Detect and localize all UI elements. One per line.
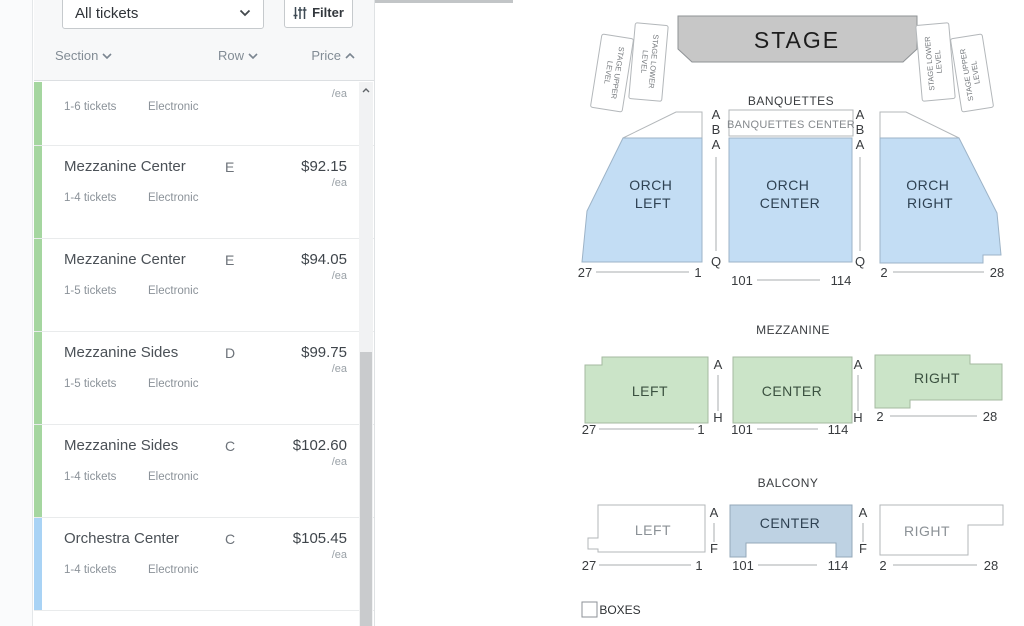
- svg-text:101: 101: [731, 422, 753, 437]
- balcony-left-label: LEFT: [635, 522, 671, 538]
- map-section-banquettes-left[interactable]: [623, 112, 702, 138]
- mezzanine-center-seat-range: 101 114: [731, 422, 848, 437]
- chevron-down-icon: [239, 9, 251, 17]
- ticket-list-header: All tickets Filter Section: [34, 0, 374, 81]
- svg-text:114: 114: [828, 422, 849, 437]
- ticket-section: Mezzanine Center: [64, 251, 186, 268]
- svg-text:2: 2: [879, 558, 886, 573]
- ticket-row-letter: D: [225, 345, 235, 361]
- left-gutter: [0, 0, 33, 626]
- svg-text:1: 1: [694, 265, 701, 280]
- balcony-title: BALCONY: [758, 476, 819, 490]
- ticket-type-value: All tickets: [75, 5, 239, 22]
- mezzanine-left-seat-range: 27 1: [582, 422, 705, 437]
- ticket-delivery: Electronic: [148, 471, 199, 483]
- svg-text:101: 101: [732, 558, 754, 573]
- balcony-right-aisle-rows: A F: [859, 505, 868, 556]
- svg-text:A: A: [712, 137, 721, 152]
- seat-map: STAGE STAGE UPPER LEVEL STAGE LOWER LEVE…: [570, 0, 1024, 626]
- banquettes-title: BANQUETTES: [748, 94, 834, 108]
- svg-text:28: 28: [990, 265, 1004, 280]
- ticket-delivery: Electronic: [148, 564, 199, 576]
- ticket-accent-bar: [34, 332, 42, 424]
- ticket-purchase-page: All tickets Filter Section: [0, 0, 1024, 626]
- orch-left-aisle-rows: A B A Q: [711, 107, 721, 269]
- mezzanine-right-label: RIGHT: [914, 370, 960, 386]
- ticket-row-letter: E: [225, 252, 234, 268]
- svg-text:Q: Q: [855, 254, 865, 269]
- ticket-type-dropdown[interactable]: All tickets: [62, 0, 264, 29]
- stage-label: STAGE: [754, 27, 840, 53]
- ticket-price: $102.60: [293, 437, 347, 454]
- section-column-label: Section: [55, 48, 98, 63]
- svg-text:B: B: [856, 122, 865, 137]
- ticket-delivery: Electronic: [148, 285, 199, 297]
- stage-upper-level-right[interactable]: STAGE UPPER LEVEL: [950, 34, 993, 112]
- mezzanine-left-aisle-rows: A H: [713, 357, 722, 425]
- ticket-section: Mezzanine Center: [64, 158, 186, 175]
- ticket-row[interactable]: Mezzanine Center E $92.15 /ea 1-4 ticket…: [34, 146, 374, 239]
- mezzanine-right-aisle-rows: A H: [853, 357, 862, 425]
- ticket-per-unit: /ea: [332, 88, 347, 100]
- filter-button-label: Filter: [312, 5, 344, 20]
- ticket-section: Mezzanine Sides: [64, 344, 178, 361]
- svg-text:114: 114: [828, 558, 849, 573]
- list-scrollbar[interactable]: [359, 82, 373, 626]
- svg-text:1: 1: [697, 422, 704, 437]
- balcony-left-aisle-rows: A F: [710, 505, 719, 556]
- column-headers: Section Row Price: [34, 48, 374, 68]
- chevron-up-icon: [345, 53, 355, 59]
- ticket-accent-bar: [34, 425, 42, 517]
- map-section-balcony-center[interactable]: [730, 505, 852, 557]
- ticket-price: $92.15: [301, 158, 347, 175]
- ticket-delivery: Electronic: [148, 192, 199, 204]
- stage-upper-level-left[interactable]: STAGE UPPER LEVEL: [590, 34, 633, 112]
- balcony-right-label: RIGHT: [904, 523, 950, 539]
- svg-text:27: 27: [578, 265, 592, 280]
- ticket-delivery: Electronic: [148, 101, 199, 113]
- balcony-left-seat-range: 27 1: [582, 558, 703, 573]
- map-section-banquettes-right[interactable]: [880, 112, 959, 138]
- orch-right-seat-range: 2 28: [880, 265, 1004, 280]
- ticket-quantity: 1-4 tickets: [64, 471, 116, 483]
- svg-text:F: F: [710, 541, 718, 556]
- ticket-section: Orchestra Center: [64, 530, 179, 547]
- ticket-accent-bar: [34, 146, 42, 238]
- ticket-row[interactable]: Mezzanine Sides C $102.60 /ea 1-4 ticket…: [34, 425, 374, 518]
- mezzanine-center-label: CENTER: [762, 383, 823, 399]
- ticket-row[interactable]: /ea 1-6 tickets Electronic: [34, 82, 374, 146]
- svg-text:27: 27: [582, 422, 596, 437]
- filter-button[interactable]: Filter: [284, 0, 353, 28]
- svg-text:Q: Q: [711, 254, 721, 269]
- stage-lower-level-left[interactable]: STAGE LOWER LEVEL: [629, 23, 668, 102]
- ticket-list: /ea 1-6 tickets Electronic Mezzanine Cen…: [34, 82, 374, 626]
- svg-text:1: 1: [695, 558, 702, 573]
- svg-text:A: A: [714, 357, 723, 372]
- ticket-per-unit: /ea: [332, 456, 347, 468]
- balcony-right-seat-range: 2 28: [879, 558, 998, 573]
- ticket-per-unit: /ea: [332, 363, 347, 375]
- svg-text:28: 28: [984, 558, 998, 573]
- orch-right-aisle-rows: A B A Q: [855, 107, 865, 269]
- orch-center-seat-range: 101 114: [731, 273, 851, 288]
- mezzanine-right-seat-range: 2 28: [876, 409, 997, 424]
- svg-text:A: A: [854, 357, 863, 372]
- ticket-row-letter: E: [225, 159, 234, 175]
- sort-by-section[interactable]: Section: [55, 48, 112, 63]
- stage-lower-level-right[interactable]: STAGE LOWER LEVEL: [916, 23, 955, 102]
- ticket-quantity: 1-4 tickets: [64, 192, 116, 204]
- balcony-center-label: CENTER: [760, 515, 821, 531]
- svg-text:A: A: [856, 107, 865, 122]
- filter-sliders-icon: [293, 6, 307, 20]
- ticket-quantity: 1-4 tickets: [64, 564, 116, 576]
- svg-text:A: A: [859, 505, 868, 520]
- ticket-delivery: Electronic: [148, 378, 199, 390]
- sort-by-row[interactable]: Row: [218, 48, 258, 63]
- svg-text:2: 2: [876, 409, 883, 424]
- row-column-label: Row: [218, 48, 244, 63]
- boxes-label: BOXES: [599, 603, 640, 617]
- svg-text:27: 27: [582, 558, 596, 573]
- ticket-quantity: 1-5 tickets: [64, 285, 116, 297]
- ticket-section: Mezzanine Sides: [64, 437, 178, 454]
- svg-text:28: 28: [983, 409, 997, 424]
- sort-by-price[interactable]: Price: [311, 48, 355, 63]
- ticket-accent-bar: [34, 82, 42, 145]
- ticket-row[interactable]: Orchestra Center C $105.45 /ea 1-4 ticke…: [34, 518, 374, 611]
- ticket-list-panel: All tickets Filter Section: [34, 0, 375, 626]
- svg-text:F: F: [859, 541, 867, 556]
- svg-text:H: H: [853, 410, 862, 425]
- ticket-row-letter: C: [225, 531, 235, 547]
- ticket-quantity: 1-5 tickets: [64, 378, 116, 390]
- ticket-per-unit: /ea: [332, 177, 347, 189]
- ticket-accent-bar: [34, 239, 42, 331]
- map-section-boxes[interactable]: [582, 602, 597, 617]
- balcony-center-seat-range: 101 114: [732, 558, 848, 573]
- price-column-label: Price: [311, 48, 341, 63]
- ticket-row[interactable]: Mezzanine Sides D $99.75 /ea 1-5 tickets…: [34, 332, 374, 425]
- chevron-down-icon: [248, 53, 258, 59]
- svg-text:A: A: [712, 107, 721, 122]
- svg-text:B: B: [712, 122, 721, 137]
- svg-text:101: 101: [731, 273, 753, 288]
- svg-text:A: A: [710, 505, 719, 520]
- svg-text:2: 2: [880, 265, 887, 280]
- scroll-up-arrow-icon: [362, 88, 370, 93]
- chevron-down-icon: [102, 53, 112, 59]
- ticket-price: $105.45: [293, 530, 347, 547]
- ticket-row[interactable]: Mezzanine Center E $94.05 /ea 1-5 ticket…: [34, 239, 374, 332]
- scrollbar-thumb[interactable]: [360, 352, 372, 626]
- orch-left-seat-range: 27 1: [578, 265, 702, 280]
- svg-text:114: 114: [831, 273, 852, 288]
- ticket-price: $94.05: [301, 251, 347, 268]
- ticket-row-letter: C: [225, 438, 235, 454]
- ticket-quantity: 1-6 tickets: [64, 101, 116, 113]
- ticket-price: $99.75: [301, 344, 347, 361]
- top-divider: [375, 0, 513, 3]
- mezzanine-title: MEZZANINE: [756, 323, 830, 337]
- ticket-per-unit: /ea: [332, 270, 347, 282]
- mezzanine-left-label: LEFT: [632, 383, 668, 399]
- svg-text:A: A: [856, 137, 865, 152]
- ticket-accent-bar: [34, 518, 42, 610]
- svg-text:H: H: [713, 410, 722, 425]
- banquettes-center-label: BANQUETTES CENTER: [727, 119, 855, 131]
- ticket-per-unit: /ea: [332, 549, 347, 561]
- scroll-up-button[interactable]: [359, 82, 373, 98]
